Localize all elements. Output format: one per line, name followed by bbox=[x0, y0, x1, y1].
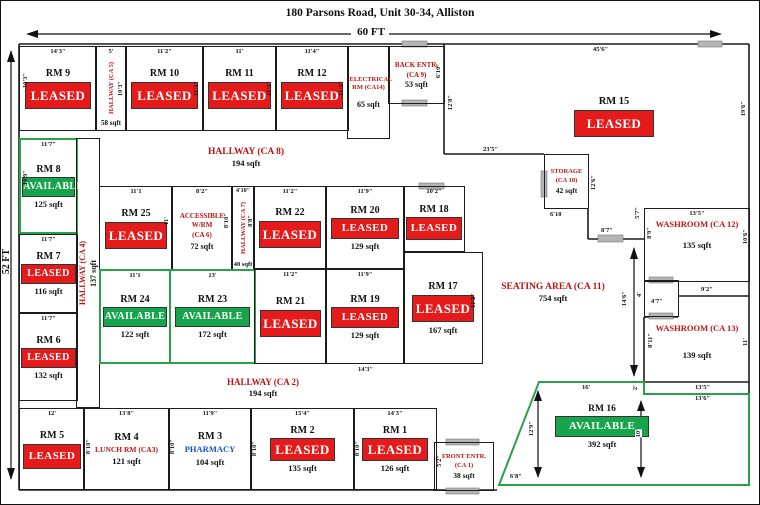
sqft-label: 129 sqft bbox=[351, 330, 380, 340]
room-rm19: 11'9" RM 19 LEASED 129 sqft bbox=[325, 269, 405, 364]
dim-label: 8'10" bbox=[354, 441, 361, 456]
dim-label: 11'9" bbox=[169, 410, 251, 417]
area-label: BACK ENTR. bbox=[395, 61, 438, 70]
sqft-label: 42 sqft bbox=[556, 186, 577, 195]
status-badge: LEASED bbox=[21, 348, 76, 368]
room-label: RM 7 bbox=[36, 251, 60, 262]
status-badge: LEASED bbox=[406, 217, 461, 240]
sqft-label: 167 sqft bbox=[429, 325, 458, 335]
status-badge: LEASED bbox=[21, 264, 76, 284]
dim-label: 13'5" bbox=[695, 384, 710, 391]
room-rm21: 11'2" RM 21 LEASED bbox=[254, 269, 327, 364]
room-label: RM 4 bbox=[114, 432, 138, 443]
dim-label: 13'5" bbox=[645, 210, 749, 217]
sqft-label: 754 sqft bbox=[487, 293, 619, 303]
room-rm3: 11'9" RM 3 PHARMACY 104 sqft bbox=[168, 408, 252, 490]
sqft-label: 172 sqft bbox=[198, 329, 227, 339]
sqft-label: 125 sqft bbox=[34, 199, 63, 209]
room-rm8: 11'7" 10'9" RM 8 AVAILABLE 125 sqft bbox=[19, 138, 78, 234]
sqft-label: 135 sqft bbox=[288, 463, 317, 473]
status-badge: LEASED bbox=[208, 82, 271, 109]
room-rm16: RM 16 AVAILABLE 392 sqft bbox=[542, 401, 662, 451]
dim-label: 11'9" bbox=[326, 271, 404, 278]
sqft-label: 392 sqft bbox=[588, 439, 617, 449]
dim-label: 23'5" bbox=[483, 146, 498, 153]
status-badge: LEASED bbox=[574, 110, 653, 137]
status-badge: LEASED bbox=[331, 307, 398, 328]
status-badge: LEASED bbox=[281, 82, 343, 109]
sqft-label: 53 sqft bbox=[405, 80, 428, 89]
area-label: FRONT ENTR. bbox=[442, 453, 486, 461]
status-badge: AVAILABLE bbox=[175, 307, 250, 327]
dim-label: 6'10" bbox=[435, 63, 442, 78]
status-badge: LEASED bbox=[25, 82, 90, 109]
room-label: RM 8 bbox=[36, 164, 60, 175]
status-badge: LEASED bbox=[131, 82, 197, 109]
dim-label: 12'6" bbox=[590, 175, 597, 190]
dim-label: 14'3" bbox=[354, 410, 436, 417]
dim-label: 8'9" bbox=[646, 227, 653, 239]
room-label: RM 24 bbox=[120, 294, 149, 305]
area-label: HALLWAY (CA 8) bbox=[184, 147, 308, 157]
sqft-label: 72 sqft bbox=[191, 242, 214, 251]
room-rm9: 14'3" 10'3" RM 9 LEASED bbox=[19, 46, 97, 131]
area-label: (CA 9) bbox=[407, 71, 427, 80]
room-rm5: 12' RM 5 LEASED bbox=[19, 408, 85, 490]
dim-label: 11'7" bbox=[20, 236, 77, 243]
dim-label: 4'7" bbox=[651, 298, 663, 305]
room-label: RM 22 bbox=[275, 207, 304, 218]
room-rm22: 11'2" RM 22 LEASED bbox=[253, 186, 327, 269]
sqft-label: 137 sqft bbox=[89, 260, 98, 287]
area-label: HALLWAY (CA 5) bbox=[108, 62, 115, 114]
status-badge: AVAILABLE bbox=[103, 307, 167, 327]
dim-label: 8'10" bbox=[223, 213, 230, 228]
room-label: RM 2 bbox=[290, 425, 314, 436]
dim-label: 14'3" bbox=[20, 48, 96, 55]
area-seating: SEATING AREA (CA 11) 754 sqft bbox=[487, 282, 619, 303]
room-label: RM 25 bbox=[121, 208, 150, 219]
dim-label: 10'6" bbox=[742, 229, 749, 244]
dim-label: 11'7" bbox=[20, 315, 77, 322]
tenant-label: PHARMACY bbox=[185, 444, 236, 455]
room-rm18: 10'2" RM 18 LEASED bbox=[403, 186, 465, 252]
dim-label: 5'2" bbox=[436, 455, 443, 467]
sqft-label: 135 sqft bbox=[683, 240, 712, 250]
room-rm20: 11'9" RM 20 LEASED 129 sqft bbox=[325, 186, 405, 269]
dim-label: 10'9" bbox=[22, 170, 29, 185]
room-label: RM 17 bbox=[428, 281, 457, 292]
dim-label: 14'3" bbox=[358, 366, 373, 373]
room-storage: STORAGE (CA 10) 42 sqft bbox=[544, 154, 589, 209]
dim-label: 10' bbox=[635, 429, 642, 437]
area-label: HALLWAY (CA 7) bbox=[240, 202, 247, 254]
dim-label: 12' bbox=[20, 410, 84, 417]
room-electrical: ELECTRICAL RM (CA14) 65 sqft bbox=[347, 46, 390, 139]
dim-label: 6'10 bbox=[550, 211, 562, 218]
dim-label: 8'7" bbox=[601, 227, 613, 234]
page-title: 180 Parsons Road, Unit 30-34, Alliston bbox=[1, 7, 759, 19]
dim-label: 5'7" bbox=[634, 207, 641, 219]
area-label: WASHROOM (CA 12) bbox=[656, 219, 739, 230]
dim-label: 10'2" bbox=[404, 188, 464, 195]
dim-label: 8'10" bbox=[251, 441, 258, 456]
dim-label: 10'3" bbox=[117, 81, 124, 96]
sqft-label: 132 sqft bbox=[34, 370, 63, 380]
dim-label: 4'10" bbox=[232, 188, 254, 194]
area-label: LUNCH RM (CA3) bbox=[95, 445, 158, 454]
room-rm1: 14'3" RM 1 LEASED 126 sqft bbox=[353, 408, 437, 490]
dim-label: 11' bbox=[163, 217, 170, 225]
room-washroom-ca12: 13'5" WASHROOM (CA 12) 135 sqft bbox=[644, 208, 750, 282]
dim-label: 11'1 bbox=[101, 272, 169, 279]
room-label: RM 3 bbox=[198, 431, 222, 442]
dim-label: 4' bbox=[636, 292, 643, 297]
dim-label: 9'2" bbox=[701, 286, 713, 293]
room-label: RM 21 bbox=[276, 296, 305, 307]
dim-label: 11'7" bbox=[21, 141, 76, 148]
room-rm17: RM 17 LEASED 167 sqft bbox=[403, 252, 483, 364]
room-label: RM 16 bbox=[588, 404, 616, 414]
sqft-label: 116 sqft bbox=[34, 286, 62, 296]
dim-label: 14'6" bbox=[621, 291, 628, 306]
sqft-label: 104 sqft bbox=[196, 457, 225, 467]
room-label: RM 18 bbox=[419, 204, 448, 215]
dim-label: 11' bbox=[742, 338, 749, 346]
status-badge: AVAILABLE bbox=[22, 177, 75, 197]
status-badge: LEASED bbox=[259, 221, 321, 248]
room-label: RM 9 bbox=[46, 68, 70, 79]
dim-label: 11'4" bbox=[276, 48, 348, 55]
sqft-label: 194 sqft bbox=[184, 158, 308, 168]
status-badge: LEASED bbox=[23, 444, 82, 469]
dim-label: 11'2" bbox=[254, 188, 326, 195]
dim-label: 11'3" bbox=[266, 81, 273, 96]
sqft-label: 122 sqft bbox=[121, 329, 150, 339]
room-rm2: 15'4" RM 2 LEASED 135 sqft bbox=[250, 408, 355, 490]
area-label: WASHROOM (CA 13) bbox=[647, 323, 747, 334]
room-hallway-ca7: 4'10" HALLWAY (CA 7) 40 sqft bbox=[231, 186, 255, 271]
dim-label: 12'9" bbox=[528, 421, 535, 436]
dim-label: 19'6" bbox=[740, 101, 747, 116]
status-badge: LEASED bbox=[270, 438, 336, 461]
status-badge: LEASED bbox=[412, 295, 474, 322]
area-label: (CA 1) bbox=[455, 462, 473, 470]
dim-label: 6'8" bbox=[510, 473, 522, 480]
area-hallway-ca8: HALLWAY (CA 8) 194 sqft bbox=[184, 147, 308, 168]
area-label: (CA 6) bbox=[192, 231, 212, 240]
sqft-label: 126 sqft bbox=[381, 463, 410, 473]
dim-label: 15'4" bbox=[251, 410, 354, 417]
floorplan: 180 Parsons Road, Unit 30-34, Alliston 6… bbox=[0, 0, 760, 505]
dim-label: 8'2" bbox=[172, 188, 232, 195]
area-label: ACCESSIBLE W/RM bbox=[177, 212, 227, 230]
room-label: RM 15 bbox=[599, 96, 630, 107]
dim-label: 16' bbox=[582, 384, 590, 391]
room-label: RM 20 bbox=[350, 205, 379, 216]
dim-label: 8'8" bbox=[247, 215, 254, 227]
sqft-label: 65 sqft bbox=[357, 100, 380, 109]
dim-label: 13' bbox=[171, 272, 254, 279]
room-rm6: 11'7" RM 6 LEASED 132 sqft bbox=[19, 313, 78, 401]
status-badge: LEASED bbox=[331, 218, 398, 239]
status-badge: LEASED bbox=[260, 310, 321, 337]
area-label: SEATING AREA (CA 11) bbox=[487, 282, 619, 292]
width-dimension: 60 FT bbox=[347, 26, 395, 38]
sqft-label: 139 sqft bbox=[647, 350, 747, 360]
room-label: RM 6 bbox=[36, 335, 60, 346]
room-front-entr: FRONT ENTR. (CA 1) 38 sqft bbox=[434, 442, 494, 491]
area-label: HALLWAY (CA 2) bbox=[213, 377, 313, 387]
dim-label: 8'11" bbox=[647, 333, 654, 348]
room-accessible-wr: 8'2" ACCESSIBLE W/RM (CA 6) 72 sqft bbox=[171, 186, 233, 271]
dim-label: 11'2" bbox=[126, 48, 203, 55]
dim-label: 5' bbox=[96, 48, 126, 55]
area-label: (CA 10) bbox=[556, 177, 577, 185]
status-badge: LEASED bbox=[105, 222, 167, 249]
room-rm24: 11'1 RM 24 AVAILABLE 122 sqft bbox=[99, 269, 171, 364]
status-badge: LEASED bbox=[362, 438, 428, 461]
area-hallway-ca2: HALLWAY (CA 2) 194 sqft bbox=[213, 377, 313, 398]
sqft-label: 129 sqft bbox=[351, 241, 380, 251]
dim-label: 11'2" bbox=[470, 293, 477, 308]
sqft-label: 194 sqft bbox=[213, 388, 313, 398]
dim-label: 8'10" bbox=[169, 439, 176, 454]
room-rm25: 11'1 RM 25 LEASED bbox=[99, 186, 173, 271]
room-hallway-ca4: HALLWAY (CA 4) 137 sqft bbox=[76, 138, 100, 408]
area-label: STORAGE bbox=[551, 168, 583, 176]
dim-label: 2' bbox=[632, 385, 639, 390]
sqft-label: 121 sqft bbox=[112, 456, 141, 466]
room-label: RM 10 bbox=[150, 68, 179, 79]
dim-label: 45'6" bbox=[593, 46, 608, 53]
room-label: RM 11 bbox=[225, 68, 254, 79]
dim-label: 8'10" bbox=[85, 439, 92, 454]
area-label: ELECTRICAL RM (CA14) bbox=[350, 76, 388, 92]
dim-label: 13'6" bbox=[695, 395, 710, 402]
sqft-label: 38 sqft bbox=[453, 471, 474, 480]
height-dimension: 52 FT bbox=[1, 249, 12, 274]
room-label: RM 1 bbox=[383, 425, 407, 436]
dim-label: 11'9" bbox=[326, 188, 404, 195]
dim-label: 11'3" bbox=[193, 81, 200, 96]
sqft-label: 58 sqft bbox=[96, 119, 126, 127]
room-rm15: RM 15 LEASED bbox=[559, 95, 669, 137]
room-label: RM 5 bbox=[40, 430, 64, 441]
room-label: RM 12 bbox=[297, 68, 326, 79]
area-label: HALLWAY (CA 4) bbox=[78, 241, 87, 305]
dim-label: 12'8" bbox=[447, 95, 454, 110]
room-label: RM 19 bbox=[350, 294, 379, 305]
dim-label: 13'8" bbox=[84, 410, 169, 417]
dim-label: 11'2" bbox=[255, 271, 326, 278]
room-rm4: 13'8" RM 4 LUNCH RM (CA3) 121 sqft bbox=[83, 408, 170, 490]
room-label: RM 23 bbox=[198, 294, 227, 305]
dim-label: 10'3" bbox=[22, 73, 29, 88]
room-rm23: 13' RM 23 AVAILABLE 172 sqft bbox=[169, 269, 256, 364]
room-rm7: 11'7" RM 7 LEASED 116 sqft bbox=[19, 234, 78, 313]
dim-label: 11'3" bbox=[338, 81, 345, 96]
dim-label: 11'1 bbox=[100, 188, 172, 195]
dim-label: 11' bbox=[203, 48, 276, 55]
